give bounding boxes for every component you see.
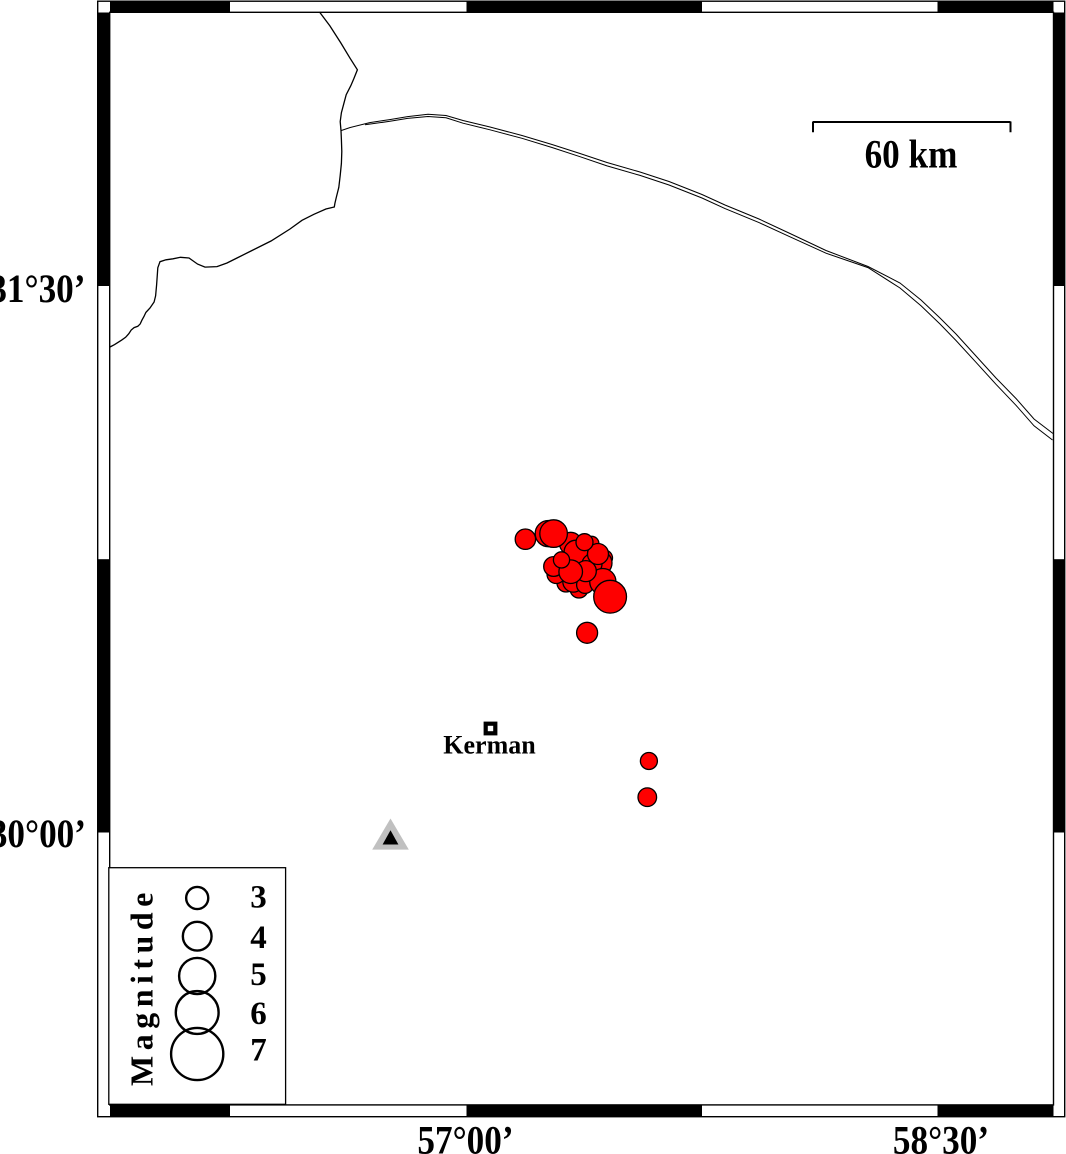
svg-text:5: 5 [250,957,267,993]
svg-text:57°00’: 57°00’ [417,1118,513,1154]
svg-text:6: 6 [250,996,267,1032]
svg-text:60 km: 60 km [865,132,958,177]
svg-text:Kerman: Kerman [443,731,536,760]
svg-text:31°30’: 31°30’ [0,267,85,312]
svg-text:7: 7 [250,1032,267,1068]
svg-text:4: 4 [250,920,267,956]
svg-text:Magnitude: Magnitude [123,887,159,1086]
svg-text:3: 3 [250,880,267,916]
svg-text:30°00’: 30°00’ [0,812,86,857]
svg-text:58°30’: 58°30’ [893,1118,989,1154]
